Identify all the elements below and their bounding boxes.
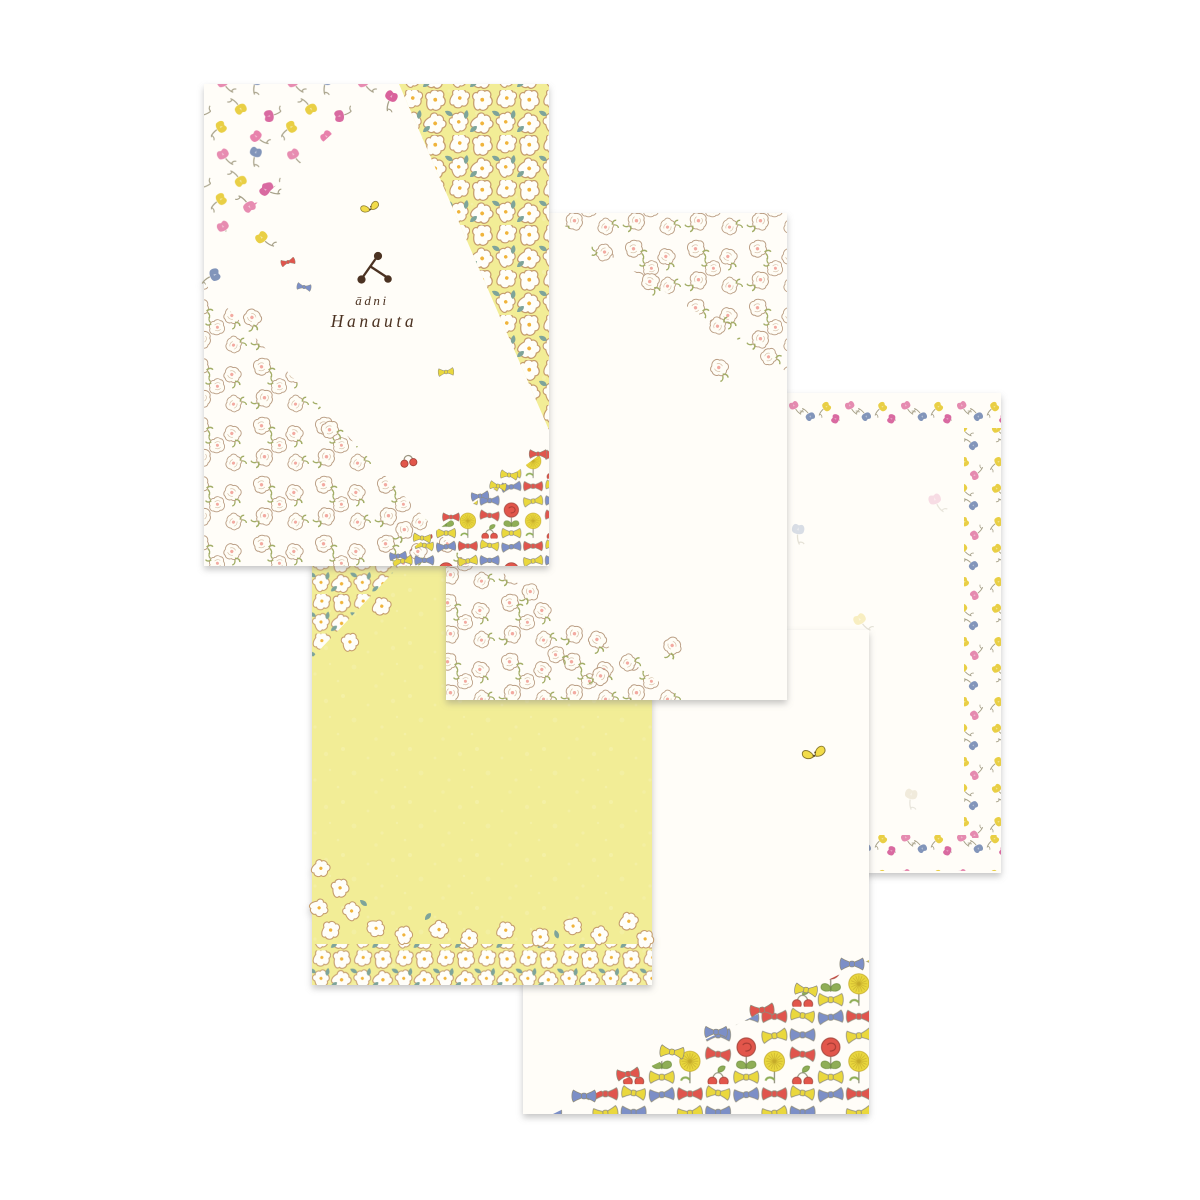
svg-text:Hanauta: Hanauta: [330, 311, 417, 331]
svg-text:ādni: ādni: [355, 293, 389, 308]
